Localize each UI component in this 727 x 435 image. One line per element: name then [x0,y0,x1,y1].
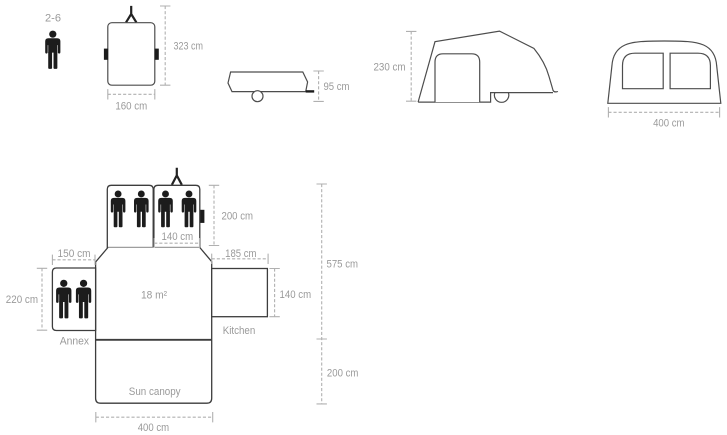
svg-text:400 cm: 400 cm [138,422,169,434]
svg-text:160 cm: 160 cm [115,101,147,113]
svg-text:185 cm: 185 cm [225,248,256,260]
svg-text:150 cm: 150 cm [58,248,91,260]
svg-text:575 cm: 575 cm [327,259,359,271]
svg-text:400 cm: 400 cm [653,117,684,129]
svg-text:18 m²: 18 m² [141,289,167,301]
svg-text:200 cm: 200 cm [222,211,254,223]
svg-text:95 cm: 95 cm [324,81,350,93]
svg-text:Kitchen: Kitchen [223,325,256,337]
svg-text:200 cm: 200 cm [327,368,359,380]
svg-text:140 cm: 140 cm [162,231,194,243]
svg-text:220 cm: 220 cm [6,294,38,306]
svg-text:230 cm: 230 cm [374,62,406,74]
svg-text:Sun canopy: Sun canopy [129,386,181,398]
svg-text:140 cm: 140 cm [280,289,312,301]
svg-text:Annex: Annex [60,336,90,348]
svg-text:2-6: 2-6 [45,13,61,25]
svg-text:323 cm: 323 cm [174,41,204,53]
